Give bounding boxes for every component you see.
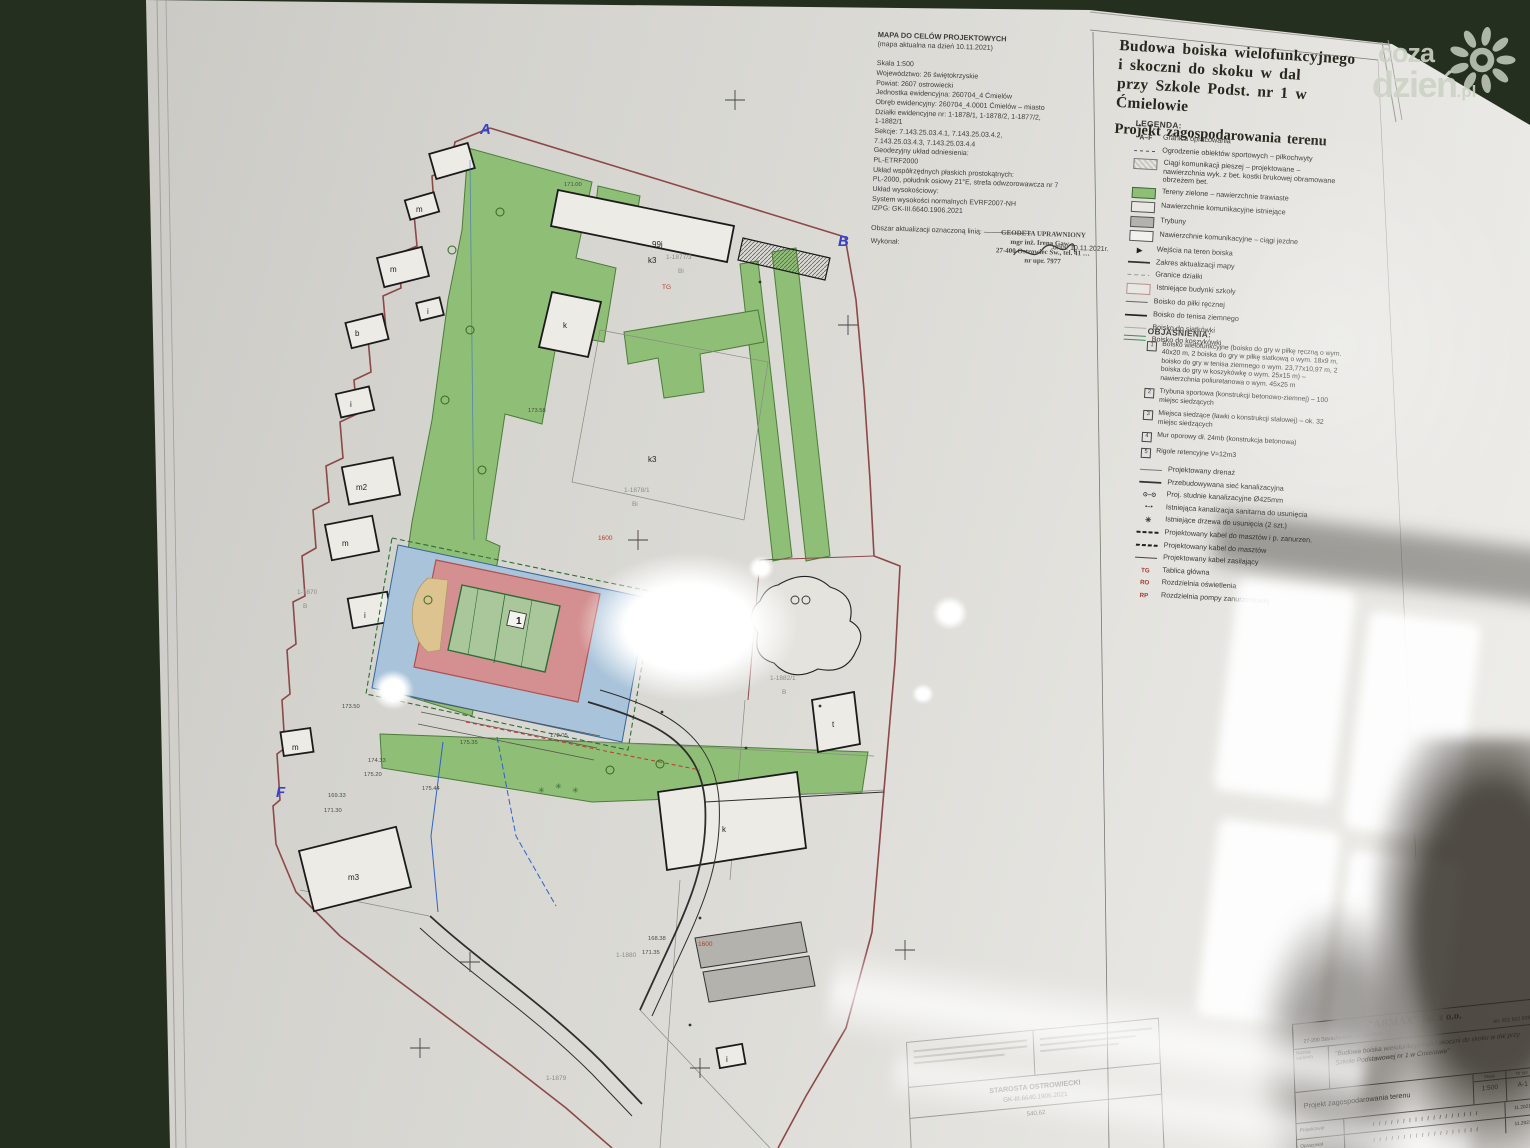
- county-office-stamp: STAROSTA OSTROWIECKI GK-III.6640.1906.20…: [906, 1018, 1165, 1148]
- map-label: 173.58: [528, 408, 546, 414]
- map-label: 169.33: [328, 793, 346, 799]
- map-label: ✳: [555, 782, 562, 791]
- legend-item-label: Granice działki: [1155, 271, 1203, 282]
- map-label: 174.33: [368, 758, 386, 764]
- cable2-symbol: [1136, 540, 1158, 550]
- sanit-symbol: •–•: [1138, 502, 1160, 512]
- school-symbol: [1126, 283, 1151, 295]
- map-label: b: [355, 329, 360, 338]
- map-label: i: [350, 400, 352, 409]
- map-label: m: [342, 539, 349, 548]
- map-label: 171.00: [564, 182, 582, 188]
- explanation-symbol-item-label: Projektowany drenaż: [1168, 465, 1236, 477]
- af-symbol: A–F: [1135, 133, 1157, 143]
- legend-item-label: Trybuny: [1160, 216, 1186, 226]
- map-label: i: [427, 307, 429, 316]
- map-label: ✳: [572, 786, 579, 795]
- cable3-symbol: [1135, 553, 1157, 563]
- scale-cell: Skala 1:500: [1472, 1071, 1506, 1105]
- map-label: 1-1878/1: [624, 487, 650, 494]
- map-label: i: [364, 611, 366, 620]
- boundary-marker-letter: A: [479, 121, 491, 138]
- sports-field: [366, 538, 654, 760]
- map-label: 1-1877/3: [666, 254, 692, 261]
- explanations: OBJAŚNIENIA: 1Boisko wielofunkcyjne (boi…: [1133, 326, 1348, 613]
- sheet-no-value: A-1: [1507, 1076, 1530, 1090]
- map-metadata-block: MAPA DO CELÓW PROJEKTOWYCH(mapa aktualna…: [870, 30, 1115, 255]
- cozadzien-watermark: coza dzień.pl: [1370, 22, 1530, 122]
- map-label: 1: [516, 616, 522, 627]
- rp-symbol: RP: [1133, 590, 1155, 600]
- explanation-symbol-item-label: Rozdzielnia oświetlenia: [1161, 578, 1236, 591]
- stands-structures: [695, 922, 815, 1002]
- map-label: B: [303, 603, 307, 610]
- titleblock-armax: "ARMAX" Sp. z o.o. 27-200 Starachowice, …: [1292, 998, 1530, 1148]
- map-label: 1-1880: [616, 952, 637, 959]
- map-label: m: [292, 743, 299, 752]
- tennis-symbol: [1125, 310, 1147, 320]
- map-label: m2: [356, 483, 368, 492]
- map-label: 168.38: [648, 936, 666, 942]
- green-symbol: [1132, 187, 1157, 199]
- map-label: m: [416, 205, 423, 214]
- map-label: Bi: [678, 268, 684, 275]
- map-label: ✳: [538, 786, 545, 795]
- legend-item-label: Istniejące budynki szkoły: [1156, 283, 1235, 296]
- fence-symbol: [1134, 146, 1156, 156]
- exist-symbol: [1131, 201, 1156, 213]
- basket-symbol: [1124, 335, 1146, 341]
- explanation-text: Mur oporowy dł. 24mb (konstrukcja betono…: [1157, 432, 1297, 448]
- legend-item-label: Wejścia na teren boiska: [1156, 245, 1233, 258]
- signature-squiggle: [1011, 239, 1076, 267]
- legend-item-label: Boisko do piłki ręcznej: [1154, 298, 1225, 311]
- explanation-symbol-item-label: Tablica główna: [1162, 566, 1210, 577]
- stands-symbol: [1130, 216, 1155, 228]
- map-label: 175.20: [364, 772, 382, 778]
- legend-list: A–FGranica opracowaniaOgrodzenie obiektó…: [1123, 132, 1340, 354]
- map-label: 1600: [698, 941, 713, 948]
- map-label: 1-1882/1: [770, 675, 796, 682]
- explanation-number: 1: [1147, 341, 1158, 351]
- explanation-text: Rigole retencyjne V=12m3: [1156, 448, 1236, 461]
- boundary-marker-letter: F: [276, 784, 286, 801]
- garden-blob: [751, 576, 860, 674]
- map-label: k3: [648, 455, 657, 464]
- sewer-symbol: [1139, 477, 1161, 487]
- watermark-suffix: .pl: [1457, 82, 1477, 101]
- legend-item-label: Zakres aktualizacji mapy: [1156, 258, 1235, 271]
- road-symbol: [1129, 230, 1154, 242]
- volley-symbol: [1124, 322, 1146, 332]
- explanation-text: Boisko wielofunkcyjne (boisko do gry w p…: [1160, 341, 1347, 394]
- explanation-number: 4: [1142, 432, 1153, 442]
- explanations-numbered: 1Boisko wielofunkcyjne (boisko do gry w …: [1141, 340, 1347, 469]
- metadata-lines: MAPA DO CELÓW PROJEKTOWYCH(mapa aktualna…: [871, 30, 1116, 241]
- map-label: 175.44: [422, 786, 441, 792]
- wells-symbol: ⊙–⊙: [1138, 490, 1160, 500]
- legend: LEGENDA: A–FGranica opracowaniaOgrodzeni…: [1123, 118, 1341, 357]
- surveyor-stamp: GEODETA UPRAWNIONY mgr inż. Irena Gaw… 2…: [983, 228, 1102, 268]
- map-label: B: [782, 689, 786, 696]
- company-phone: tel. 602 602 608: [1493, 1015, 1530, 1025]
- cable1-symbol: [1136, 528, 1158, 538]
- map-label: 1-1879: [546, 1075, 567, 1082]
- designer-date: 11.2021: [1506, 1104, 1530, 1113]
- explanation-item: 1Boisko wielofunkcyjne (boisko do gry w …: [1145, 340, 1347, 394]
- paving-symbol: [1133, 158, 1158, 170]
- explanation-number: 3: [1143, 410, 1154, 420]
- task-label: Nazwa zadania: [1294, 1046, 1330, 1092]
- map-label: TG: [662, 284, 671, 291]
- legend-item-label: Granica opracowania: [1163, 134, 1231, 146]
- ro-symbol: RO: [1133, 578, 1155, 588]
- scale-value: 1:500: [1474, 1079, 1506, 1093]
- sheet-no-cell: Nr rys. A-1: [1505, 1068, 1530, 1102]
- explanation-number: 2: [1144, 388, 1155, 398]
- map-label: 1-1870: [297, 589, 318, 596]
- watermark-word2: dzień.pl: [1372, 64, 1476, 106]
- map-label: 175.35: [460, 740, 478, 746]
- tg-symbol: TG: [1134, 565, 1156, 575]
- map-label: Bi: [632, 501, 638, 508]
- scope-symbol: [1128, 257, 1150, 267]
- trees-symbol: ✳: [1137, 515, 1159, 525]
- map-label: i: [726, 1055, 728, 1064]
- map-label: 171.30: [324, 808, 342, 814]
- entry-symbol: ▶: [1128, 245, 1150, 255]
- map-label: 173.50: [342, 704, 360, 710]
- map-label: m3: [348, 873, 360, 882]
- explanation-number: 5: [1141, 448, 1152, 458]
- map-label: 171.35: [642, 950, 660, 956]
- map-label: m: [390, 265, 397, 274]
- parcel-symbol: [1127, 270, 1149, 280]
- boundary-marker-letter: B: [838, 233, 849, 250]
- prepared-by-label: Wykonał:: [870, 237, 899, 248]
- legend-item-label: Boisko do tenisa ziemnego: [1153, 310, 1239, 323]
- photo-of-site-plan: ABFmmbiim2mimm399jk3kk3kti1-1877/3Bi1-18…: [0, 0, 1530, 1148]
- map-label: 1600: [598, 535, 613, 542]
- map-label: 172.05: [550, 733, 568, 739]
- map-label: 99j: [652, 240, 663, 249]
- map-label: k3: [648, 256, 657, 265]
- author-date: 11.2021: [1506, 1120, 1530, 1129]
- explanations-symbols: Projektowany drenażPrzebudowywana sieć k…: [1133, 464, 1340, 611]
- handball-symbol: [1125, 297, 1147, 307]
- drain-symbol: [1140, 465, 1162, 475]
